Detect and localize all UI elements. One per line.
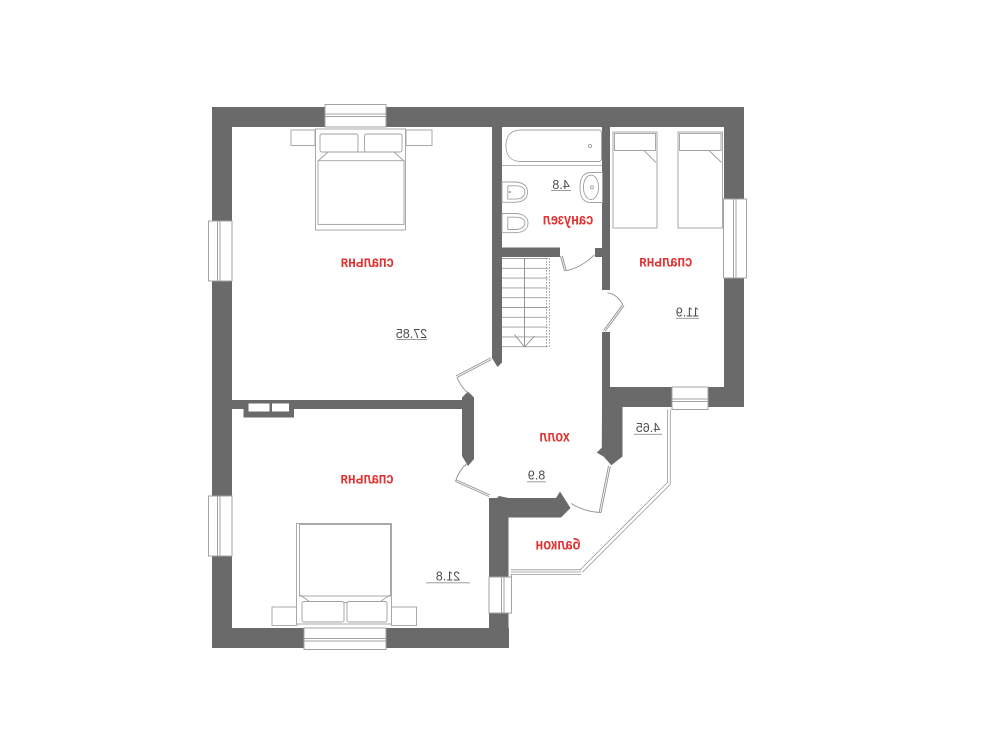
svg-text:11.9: 11.9 — [676, 305, 699, 319]
svg-text:4.65: 4.65 — [636, 421, 660, 435]
svg-text:8.9: 8.9 — [528, 469, 545, 483]
svg-text:холл: холл — [539, 428, 570, 446]
svg-text:санузел: санузел — [543, 211, 593, 229]
svg-text:21.8: 21.8 — [436, 570, 460, 584]
svg-text:спальня: спальня — [639, 253, 692, 271]
svg-text:спальня: спальня — [340, 470, 393, 488]
svg-text:4.8: 4.8 — [552, 178, 569, 192]
svg-text:балкон: балкон — [536, 536, 581, 554]
svg-text:спальня: спальня — [341, 254, 394, 272]
svg-text:27.85: 27.85 — [396, 327, 427, 341]
